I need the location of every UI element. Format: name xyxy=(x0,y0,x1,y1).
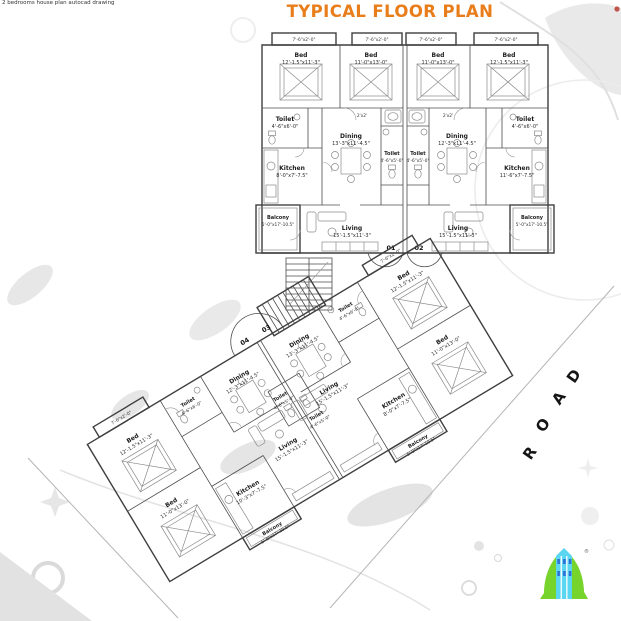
logo-window xyxy=(557,571,560,576)
room-dims: 12'-1.5"x11'-3" xyxy=(490,60,528,66)
room-dims: 12'-3"x11'-4.5" xyxy=(438,141,476,147)
upper-door-arcs xyxy=(290,108,520,240)
road-letter-a: A xyxy=(548,388,570,408)
road-letter-r: R xyxy=(519,443,541,463)
road-label: R O A D xyxy=(519,366,585,463)
decor-leaf-left xyxy=(1,258,59,312)
room-dims: 12'-1.5"x11'-3" xyxy=(282,60,320,66)
room-dims: 5'-0"x17'-10.5" xyxy=(262,222,294,228)
logo-tower-stripe xyxy=(566,556,567,599)
room-dims: 13'-3"x11'-4.5" xyxy=(332,141,370,147)
room-label-toilet: Toilet xyxy=(384,151,400,157)
lower-labels: Bed 12'-1.5"x11'-3" Bed 11'-0"x13'-0" Be… xyxy=(102,241,502,584)
closet-dim-tag: 7'-6"x2'-0" xyxy=(495,37,518,43)
room-label-balcony: Balcony xyxy=(267,215,290,221)
closet-dim-tag: 7'-6"x2'-0" xyxy=(366,37,389,43)
room-dims: 4'-6"x5'-0" xyxy=(381,158,404,164)
logo-window xyxy=(563,559,566,564)
upper-building: Bed 12'-1.5"x11'-3" Bed 11'-0"x13'-0" Be… xyxy=(256,33,554,267)
room-label-bed: Bed xyxy=(295,52,308,59)
room-label-bed: Bed xyxy=(365,52,378,59)
room-label-bed: Bed xyxy=(503,52,516,59)
room-label-living: Living xyxy=(342,225,362,232)
floor-plan-drawing: Bed 12'-1.5"x11'-3" Bed 11'-0"x13'-0" Be… xyxy=(0,0,621,621)
decor-sparkle xyxy=(40,487,70,517)
room-dims: 8'-0"x7'-7.5" xyxy=(276,173,307,179)
decor-sparkle-right xyxy=(578,458,598,478)
room-label-kitchen: Kitchen xyxy=(279,165,305,172)
duct-tag: 2'x2' xyxy=(357,113,367,119)
decor-dot-3 xyxy=(462,581,476,595)
decor-dot-4 xyxy=(581,507,599,525)
developer-logo: ® xyxy=(540,548,589,599)
closet-dim-tag: 7'-6"x2'-0" xyxy=(420,37,443,43)
logo-window xyxy=(569,571,572,576)
decor-leaf-lower xyxy=(215,433,280,482)
decor-leaf-center xyxy=(183,292,247,348)
upper-furniture xyxy=(259,64,551,251)
decor-dot-1 xyxy=(474,541,484,551)
decor-leaf-bottom xyxy=(342,475,438,536)
road-letter-o: O xyxy=(532,415,554,436)
room-label-balcony: Balcony xyxy=(521,215,544,221)
room-dims: 4'-6"x6'-0" xyxy=(272,124,299,130)
decor-ring-top-left xyxy=(231,18,255,42)
registered-mark: ® xyxy=(584,548,589,555)
room-dims: 11'-0"x13'-0" xyxy=(421,60,454,66)
upper-outer-walls xyxy=(256,33,554,253)
logo-tower-stripe xyxy=(561,556,562,599)
room-dims: 4'-6"x6'-0" xyxy=(512,124,539,130)
room-dims: 15'-1.5"x11'-3" xyxy=(333,233,371,239)
room-dims: 11'-0"x13'-0" xyxy=(354,60,387,66)
closet-dim-tag: 7'-6"x2'-0" xyxy=(293,37,316,43)
decor-dot-2 xyxy=(495,555,502,562)
unit-number-03: 03 xyxy=(260,323,272,335)
room-dims: 5'-0"x17'-10.5" xyxy=(516,222,548,228)
room-label-toilet: Toilet xyxy=(276,116,295,123)
logo-window xyxy=(563,571,566,576)
room-label-dining: Dining xyxy=(340,133,362,140)
room-label-bed: Bed xyxy=(432,52,445,59)
decor-red-dot xyxy=(614,6,619,11)
room-label-kitchen: Kitchen xyxy=(504,165,530,172)
page-title: TYPICAL FLOOR PLAN xyxy=(256,2,524,21)
floor-plan-canvas: Bed 12'-1.5"x11'-3" Bed 11'-0"x13'-0" Be… xyxy=(0,0,621,621)
duct-tag: 2'x2' xyxy=(443,113,453,119)
room-dims: 15'-1.5"x11'-3" xyxy=(439,233,477,239)
watermark-text: 2 bedrooms house plan autocad drawing xyxy=(2,0,122,6)
room-label-toilet: Toilet xyxy=(410,151,426,157)
room-dims: 11'-6"x7'-7.5" xyxy=(500,173,535,179)
room-label-dining: Dining xyxy=(446,133,468,140)
road-letter-d: D xyxy=(563,366,585,387)
upper-labels: Bed 12'-1.5"x11'-3" Bed 11'-0"x13'-0" Be… xyxy=(262,37,548,252)
decor-blob-top-right xyxy=(545,3,621,95)
room-label-toilet: Toilet xyxy=(516,116,535,123)
decor-dot-5 xyxy=(604,540,614,550)
logo-window xyxy=(557,559,560,564)
unit-number-04: 04 xyxy=(239,336,251,348)
room-dims: 4'-6"x5'-0" xyxy=(407,158,430,164)
logo-window xyxy=(569,559,572,564)
room-label-living: Living xyxy=(448,225,468,232)
